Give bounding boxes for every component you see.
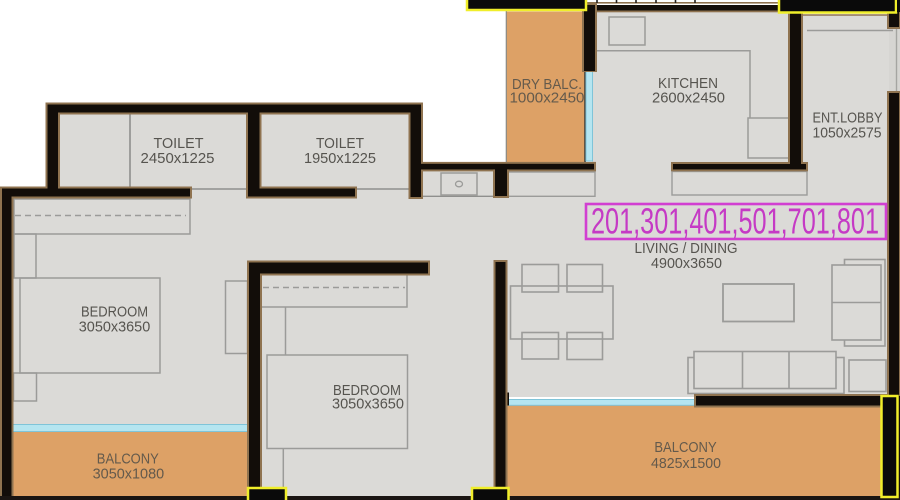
svg-text:4900x3650: 4900x3650 — [651, 255, 722, 272]
svg-text:3050x3650: 3050x3650 — [332, 396, 404, 413]
svg-text:201,301,401,501,701,801: 201,301,401,501,701,801 — [591, 201, 879, 242]
svg-text:3050x3650: 3050x3650 — [79, 319, 151, 336]
svg-text:2450x1225: 2450x1225 — [141, 150, 215, 167]
svg-text:1050x2575: 1050x2575 — [813, 125, 882, 142]
svg-text:1000x2450: 1000x2450 — [510, 90, 585, 107]
svg-text:4825x1500: 4825x1500 — [651, 455, 721, 472]
svg-text:3050x1080: 3050x1080 — [93, 466, 165, 483]
svg-text:2600x2450: 2600x2450 — [652, 90, 725, 107]
svg-text:BALCONY: BALCONY — [654, 439, 716, 456]
svg-text:1950x1225: 1950x1225 — [304, 150, 376, 167]
